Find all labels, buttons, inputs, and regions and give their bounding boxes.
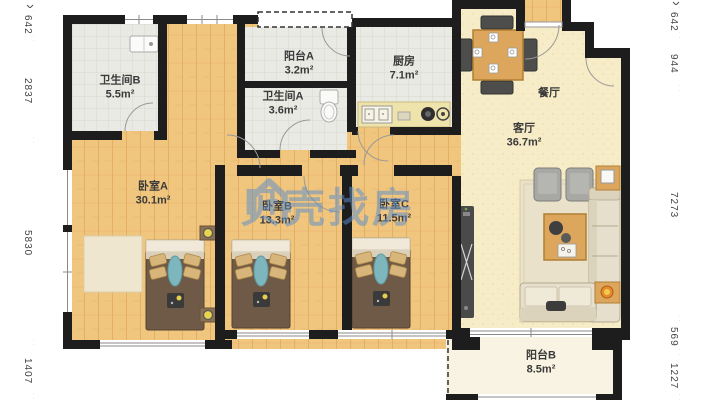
tv-console — [459, 206, 474, 318]
room-name: 餐厅 — [538, 86, 560, 100]
room-name: 卫生间B — [100, 74, 141, 88]
dim-left-642: 642 — [22, 8, 33, 42]
toilet — [320, 90, 338, 122]
bed-c — [352, 238, 410, 328]
dim-right-944: 944 — [668, 35, 679, 92]
room-name: 厨房 — [390, 55, 419, 69]
room-name: 卧室A — [136, 180, 171, 194]
dim-left-1407: 1407 — [22, 342, 33, 400]
floor-plan-canvas: 卫生间B 5.5m² 阳台A 3.2m² 卫生间A 3.6m² 厨房 7.1m²… — [0, 0, 710, 400]
dim-right-642: 642 — [668, 5, 679, 39]
room-label-balcony-b: 阳台B 8.5m² — [526, 349, 556, 378]
room-area: 36.7m² — [507, 136, 542, 150]
room-area: 30.1m² — [136, 194, 171, 208]
room-label-bathroom-b: 卫生间B 5.5m² — [100, 74, 141, 103]
room-label-balcony-a: 阳台A 3.2m² — [284, 50, 314, 79]
side-table — [596, 166, 620, 190]
room-area: 11.5m² — [377, 212, 411, 226]
armchair — [534, 168, 561, 201]
room-name: 阳台B — [526, 349, 556, 363]
side-table — [595, 282, 620, 303]
coffee-table — [544, 214, 586, 260]
floor-plan-drawing — [0, 0, 710, 400]
room-area: 13.3m² — [260, 214, 295, 228]
room-name: 卫生间A — [263, 90, 304, 104]
room-label-bathroom-a: 卫生间A 3.6m² — [263, 90, 304, 119]
room-label-bedroom-c: 卧室C 11.5m² — [377, 198, 411, 227]
room-name: 阳台A — [284, 50, 314, 64]
rug — [84, 236, 142, 292]
room-label-bedroom-a: 卧室A 30.1m² — [136, 180, 171, 209]
bed-a — [146, 240, 204, 330]
room-area: 5.5m² — [100, 88, 141, 102]
dim-right-1227: 1227 — [668, 352, 679, 400]
dim-right-7273: 7273 — [668, 88, 679, 322]
living-room-set — [520, 166, 620, 322]
room-label-bedroom-b: 卧室B 13.3m² — [260, 200, 295, 229]
dim-left-2837: 2837 — [22, 38, 33, 144]
dim-left-5830: 5830 — [22, 140, 33, 346]
dim-right-569: 569 — [668, 318, 679, 356]
kitchen-counter — [358, 102, 450, 127]
room-label-kitchen: 厨房 7.1m² — [390, 55, 419, 84]
room-label-living: 客厅 36.7m² — [507, 122, 542, 151]
bed-b — [232, 240, 290, 328]
room-area: 3.6m² — [263, 104, 304, 118]
room-name: 客厅 — [507, 122, 542, 136]
room-area: 3.2m² — [284, 64, 314, 78]
room-area: 8.5m² — [526, 363, 556, 377]
washbasin — [130, 36, 158, 52]
room-name: 卧室B — [260, 200, 295, 214]
room-name: 卧室C — [377, 198, 411, 212]
loveseat — [520, 283, 596, 321]
room-label-dining: 餐厅 — [538, 86, 560, 100]
room-area: 7.1m² — [390, 69, 419, 83]
